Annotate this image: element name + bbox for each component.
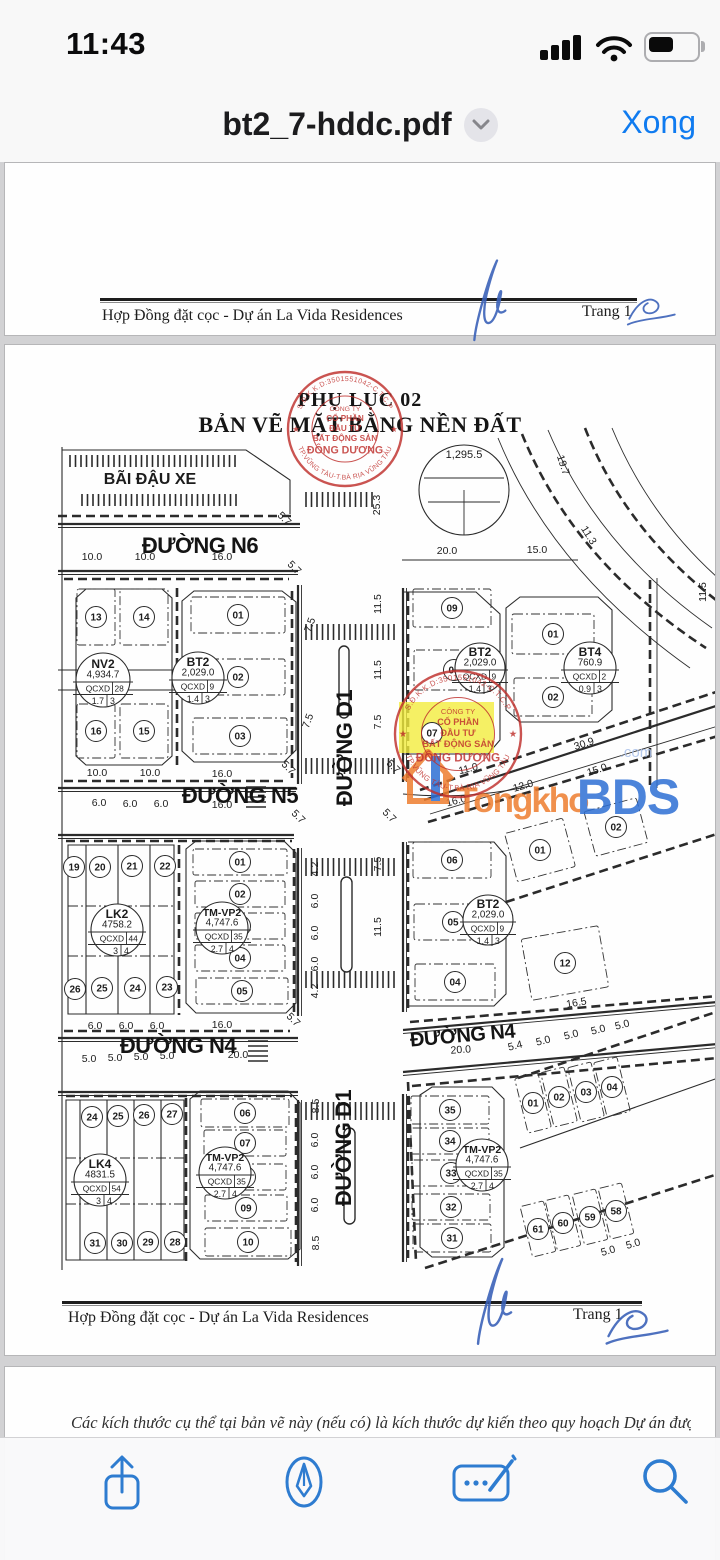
svg-text:44: 44 — [129, 934, 139, 944]
svg-text:BẤT ĐỘNG SẢN: BẤT ĐỘNG SẢN — [313, 432, 377, 443]
lot-number: 59 — [584, 1213, 596, 1224]
svg-text:2: 2 — [602, 672, 607, 682]
svg-text:QCXD: QCXD — [181, 682, 205, 692]
crosswalk-hatch — [70, 455, 235, 467]
dimension-label: 6.0 — [309, 957, 321, 972]
lot-number: 01 — [534, 846, 546, 857]
dimension-label: 11.5 — [372, 660, 384, 680]
dimension-label: 7.5 — [372, 715, 384, 730]
markup-pen-icon[interactable] — [278, 1452, 330, 1515]
svg-text:4: 4 — [232, 1189, 237, 1199]
dimension-label: 19.7 — [554, 454, 572, 477]
dimension-label: 5.0 — [563, 1027, 580, 1042]
svg-text:1.7: 1.7 — [92, 696, 104, 706]
lot-number: 09 — [240, 1204, 252, 1215]
lot-number: 29 — [142, 1238, 154, 1249]
block-label: LK24758.2QCXD4434 — [88, 904, 146, 956]
road-label: ĐƯỜNG N4 — [409, 1018, 517, 1051]
pdf-page-previous: Hợp Đồng đặt cọc - Dự án La Vida Residen… — [5, 163, 715, 335]
battery-icon — [644, 32, 700, 62]
lot-number: 01 — [232, 611, 244, 622]
dimension-label: 11.5 — [372, 594, 384, 614]
dimension-label: 8.5 — [310, 1099, 322, 1114]
svg-text:★: ★ — [390, 424, 398, 434]
status-icons — [540, 32, 700, 62]
dimension-label: 5.7 — [275, 509, 294, 528]
watermark-tld: .com — [620, 744, 653, 761]
svg-text:4: 4 — [489, 1181, 494, 1191]
lot-number: 05 — [447, 918, 459, 929]
svg-text:ĐẦU TƯ: ĐẦU TƯ — [329, 423, 361, 433]
svg-text:QCXD: QCXD — [573, 672, 597, 682]
site-plan-drawing: 1314161501020309080701020605040102121920… — [5, 425, 715, 1310]
lot-number: 24 — [86, 1113, 98, 1124]
boundary-line — [410, 996, 715, 1022]
area-label: BÃI ĐẬU XE — [104, 468, 197, 488]
road-label: ĐƯỜNG N5 — [182, 783, 298, 808]
lot-number: 04 — [234, 954, 246, 965]
dimension-label: 6.0 — [309, 1133, 321, 1148]
svg-text:4,747.6: 4,747.6 — [206, 918, 239, 929]
lot-number: 16 — [90, 727, 102, 738]
dimension-label: 16.0 — [212, 1019, 233, 1031]
lot-number: 35 — [444, 1106, 456, 1117]
svg-text:4: 4 — [107, 1196, 112, 1206]
lot-number: 32 — [445, 1203, 457, 1214]
search-icon[interactable] — [636, 1452, 692, 1511]
svg-text:2.7: 2.7 — [471, 1181, 483, 1191]
svg-text:4,747.6: 4,747.6 — [466, 1155, 499, 1166]
area-label: 1,295.5 — [446, 449, 483, 461]
pdf-page-plan: PHỤ LỤC 02 BẢN VẼ MẶT BẰNG NỀN ĐẤT S.Đ.K… — [5, 345, 715, 1355]
dimension-label: 7.5 — [372, 857, 384, 872]
lot-number: 33 — [445, 1169, 457, 1180]
top-chrome: 11:43 bt2_7-hddc.pdf — [0, 0, 720, 162]
lot-number: 02 — [547, 693, 559, 704]
lot-number: 28 — [169, 1238, 181, 1249]
dimension-label: 6.0 — [309, 926, 321, 941]
block-label: BT4760.9QCXD20.93 — [561, 642, 619, 694]
block-label: TM-VP24,747.6QCXD352.74 — [453, 1139, 511, 1191]
lot-number: 19 — [68, 863, 80, 874]
lot-number: 02 — [232, 673, 244, 684]
svg-text:54: 54 — [112, 1184, 122, 1194]
dimension-label: 7.5 — [302, 616, 318, 634]
svg-text:9: 9 — [210, 682, 215, 692]
lot-number: 34 — [444, 1137, 456, 1148]
lot-number: 01 — [527, 1099, 539, 1110]
dimension-label: 10.0 — [82, 551, 103, 563]
lot-number: 24 — [129, 984, 141, 995]
lot-number: 20 — [94, 863, 106, 874]
lot-number: 12 — [559, 959, 571, 970]
svg-text:4: 4 — [229, 944, 234, 954]
svg-text:2.7: 2.7 — [214, 1189, 226, 1199]
wifi-icon — [594, 32, 634, 62]
lot-number: 15 — [138, 727, 150, 738]
dimension-label: 4.2 — [309, 984, 321, 999]
dimension-label: 30.9 — [573, 735, 596, 753]
dimension-label: 10.0 — [87, 767, 108, 779]
dimension-label: 5.7 — [284, 1010, 303, 1029]
watermark-suffix: BDS — [577, 769, 680, 825]
svg-text:4,747.6: 4,747.6 — [209, 1163, 242, 1174]
svg-text:ĐÔNG DƯƠNG: ĐÔNG DƯƠNG — [416, 751, 500, 764]
dimension-label: 6.0 — [154, 798, 169, 810]
bottom-toolbar — [0, 1437, 720, 1560]
block-label: TM-VP24,747.6QCXD352.74 — [196, 1147, 254, 1199]
lot-number: 04 — [449, 978, 461, 989]
lot-number: 61 — [532, 1225, 544, 1236]
svg-text:ĐẦU TƯ: ĐẦU TƯ — [440, 728, 476, 738]
svg-text:3: 3 — [96, 1196, 101, 1206]
block-label: NV24,934.7QCXD281.73 — [73, 653, 133, 707]
footer-text: Hợp Đồng đặt cọc - Dự án La Vida Residen… — [102, 307, 403, 325]
crosswalk-hatch — [248, 1041, 268, 1061]
signature-initials — [625, 291, 679, 331]
dimension-label: 4.2 — [309, 862, 321, 877]
svg-text:★: ★ — [292, 424, 300, 434]
dimension-label: 10.0 — [140, 767, 161, 779]
svg-text:4,934.7: 4,934.7 — [87, 670, 120, 681]
dimension-label: 20.0 — [437, 545, 458, 557]
chevron-down-icon[interactable] — [464, 108, 498, 142]
dimension-label: 6.0 — [150, 1020, 165, 1032]
dimension-label: 6.0 — [123, 798, 138, 810]
svg-text:4: 4 — [124, 946, 129, 956]
svg-text:3: 3 — [597, 684, 602, 694]
signature — [450, 1250, 516, 1350]
lot-number: 27 — [166, 1110, 178, 1121]
dimension-label: 5.0 — [590, 1022, 607, 1037]
lot-number: 25 — [112, 1112, 124, 1123]
dimension-label: 6.0 — [309, 1165, 321, 1180]
svg-text:QCXD: QCXD — [205, 932, 229, 942]
lot-number: 09 — [446, 604, 458, 615]
dimension-label: 5.0 — [535, 1033, 552, 1048]
dimension-label: 8.5 — [310, 1236, 322, 1251]
lot-number: 02 — [553, 1093, 565, 1104]
lot-number: 21 — [126, 862, 138, 873]
dimension-label: 5.7 — [380, 806, 399, 825]
dimension-label: 6.0 — [309, 894, 321, 909]
lot-number: 26 — [138, 1111, 150, 1122]
svg-text:★: ★ — [399, 729, 407, 740]
done-button[interactable]: Xong — [621, 104, 696, 141]
lot-number: 05 — [236, 987, 248, 998]
svg-text:2.7: 2.7 — [211, 944, 223, 954]
svg-text:CỔ PHẦN: CỔ PHẦN — [326, 412, 364, 423]
svg-text:35: 35 — [234, 932, 244, 942]
lot-number: 03 — [234, 732, 246, 743]
svg-text:QCXD: QCXD — [100, 934, 124, 944]
svg-text:760.9: 760.9 — [578, 658, 603, 669]
body-text: Các kích thước cụ thể tại bản vẽ này (nế… — [71, 1413, 691, 1433]
lot-number: 02 — [234, 890, 246, 901]
dimension-label: 5.0 — [614, 1017, 631, 1032]
boundary-line — [522, 434, 706, 648]
svg-text:CỔ PHẦN: CỔ PHẦN — [437, 716, 479, 727]
lot-number: 30 — [116, 1239, 128, 1250]
lot-number: 60 — [557, 1219, 569, 1230]
svg-text:3: 3 — [205, 694, 210, 704]
crosswalk-hatch — [82, 494, 236, 506]
svg-text:35: 35 — [237, 1177, 247, 1187]
svg-text:★: ★ — [509, 729, 517, 740]
dimension-label: 5.0 — [82, 1053, 97, 1065]
road-median — [341, 877, 352, 972]
boundary-line — [585, 428, 715, 600]
svg-text:2,029.0: 2,029.0 — [472, 910, 505, 921]
lot-number: 23 — [161, 983, 173, 994]
svg-text:1.4: 1.4 — [477, 936, 489, 946]
lot-number: 26 — [69, 985, 81, 996]
road-label: ĐƯỜNG D1 — [331, 1090, 356, 1206]
signature-initials — [603, 1303, 673, 1349]
dimension-label: 11.5 — [372, 917, 384, 937]
dimension-label: 15.0 — [527, 544, 548, 556]
company-stamp: S.Đ.K.K.D:3501551042-C.T.C.PTP.VŨNG TÀU-… — [288, 372, 402, 486]
svg-text:QCXD: QCXD — [471, 924, 495, 934]
lot-number: 14 — [138, 613, 150, 624]
svg-text:2,029.0: 2,029.0 — [464, 658, 497, 669]
svg-text:35: 35 — [494, 1169, 504, 1179]
dimension-label: 11.5 — [697, 582, 709, 602]
cellular-signal-icon — [540, 32, 584, 62]
lot-number: 07 — [239, 1139, 251, 1150]
road-label: ĐƯỜNG D1 — [332, 690, 357, 806]
svg-text:3: 3 — [495, 936, 500, 946]
iphone-screen: 11:43 bt2_7-hddc.pdf — [0, 0, 720, 1560]
road-edge-thin — [612, 428, 715, 578]
lot-number: 06 — [446, 856, 458, 867]
lot-number: 04 — [606, 1083, 618, 1094]
dimension-label: 5.7 — [279, 758, 298, 777]
dimension-label: 5.0 — [624, 1236, 641, 1252]
road-edge-thin — [548, 430, 712, 628]
signature — [448, 251, 510, 347]
svg-text:QCXD: QCXD — [83, 1184, 107, 1194]
lot-number: 31 — [89, 1239, 101, 1250]
lot-number: 25 — [96, 984, 108, 995]
road-label: ĐƯỜNG N6 — [142, 533, 258, 558]
svg-text:CÔNG TY: CÔNG TY — [441, 707, 475, 716]
block-label: TM-VP24,747.6QCXD352.74 — [193, 902, 251, 954]
svg-text:QCXD: QCXD — [86, 684, 110, 694]
lot-number: 31 — [446, 1234, 458, 1245]
svg-text:QCXD: QCXD — [465, 1169, 489, 1179]
lot-number: 22 — [159, 862, 171, 873]
svg-text:0.9: 0.9 — [579, 684, 591, 694]
crosswalk-hatch — [306, 624, 394, 640]
dimension-label: 7.5 — [300, 712, 316, 730]
footer-rule — [100, 298, 637, 301]
svg-text:4758.2: 4758.2 — [102, 920, 132, 931]
svg-text:9: 9 — [500, 924, 505, 934]
svg-text:3: 3 — [110, 696, 115, 706]
svg-text:28: 28 — [115, 684, 125, 694]
lot-number: 03 — [580, 1088, 592, 1099]
dimension-label: 6.0 — [119, 1020, 134, 1032]
status-time: 11:43 — [44, 26, 168, 62]
svg-text:2,029.0: 2,029.0 — [182, 668, 215, 679]
svg-text:CÔNG TY: CÔNG TY — [330, 404, 361, 413]
lot-number: 01 — [547, 630, 559, 641]
lot-number: 13 — [90, 613, 102, 624]
title-stamp: S.Đ.K.K.D:3501551042-C.T.C.PTP.VŨNG TÀU-… — [270, 354, 420, 504]
lot-number: 10 — [242, 1238, 254, 1249]
svg-text:1.4: 1.4 — [187, 694, 199, 704]
dimension-label: 6.0 — [88, 1020, 103, 1032]
svg-text:4831.5: 4831.5 — [85, 1170, 116, 1181]
svg-text:3: 3 — [113, 946, 118, 956]
lot-number: 06 — [239, 1109, 251, 1120]
footer-text: Hợp Đồng đặt cọc - Dự án La Vida Residen… — [68, 1309, 369, 1327]
signature-icon[interactable] — [452, 1452, 520, 1511]
dimension-label: 6.0 — [309, 1198, 321, 1213]
document-title-bar: bt2_7-hddc.pdf — [0, 106, 720, 144]
road-label: ĐƯỜNG N4 — [120, 1033, 237, 1058]
lot-number: 07 — [426, 729, 438, 740]
lot-number: 58 — [610, 1207, 622, 1218]
lot-number: 01 — [234, 858, 246, 869]
dimension-label: 16.0 — [212, 768, 233, 780]
dimension-label: 5.0 — [599, 1243, 616, 1259]
dimension-label: 6.0 — [92, 797, 107, 809]
document-title: bt2_7-hddc.pdf — [222, 106, 451, 142]
share-icon[interactable] — [96, 1452, 148, 1517]
dimension-label: 5.7 — [289, 807, 308, 826]
svg-text:ĐÔNG DƯƠNG: ĐÔNG DƯƠNG — [307, 444, 383, 457]
svg-text:BẤT ĐỘNG SẢN: BẤT ĐỘNG SẢN — [422, 738, 494, 749]
svg-text:QCXD: QCXD — [208, 1177, 232, 1187]
